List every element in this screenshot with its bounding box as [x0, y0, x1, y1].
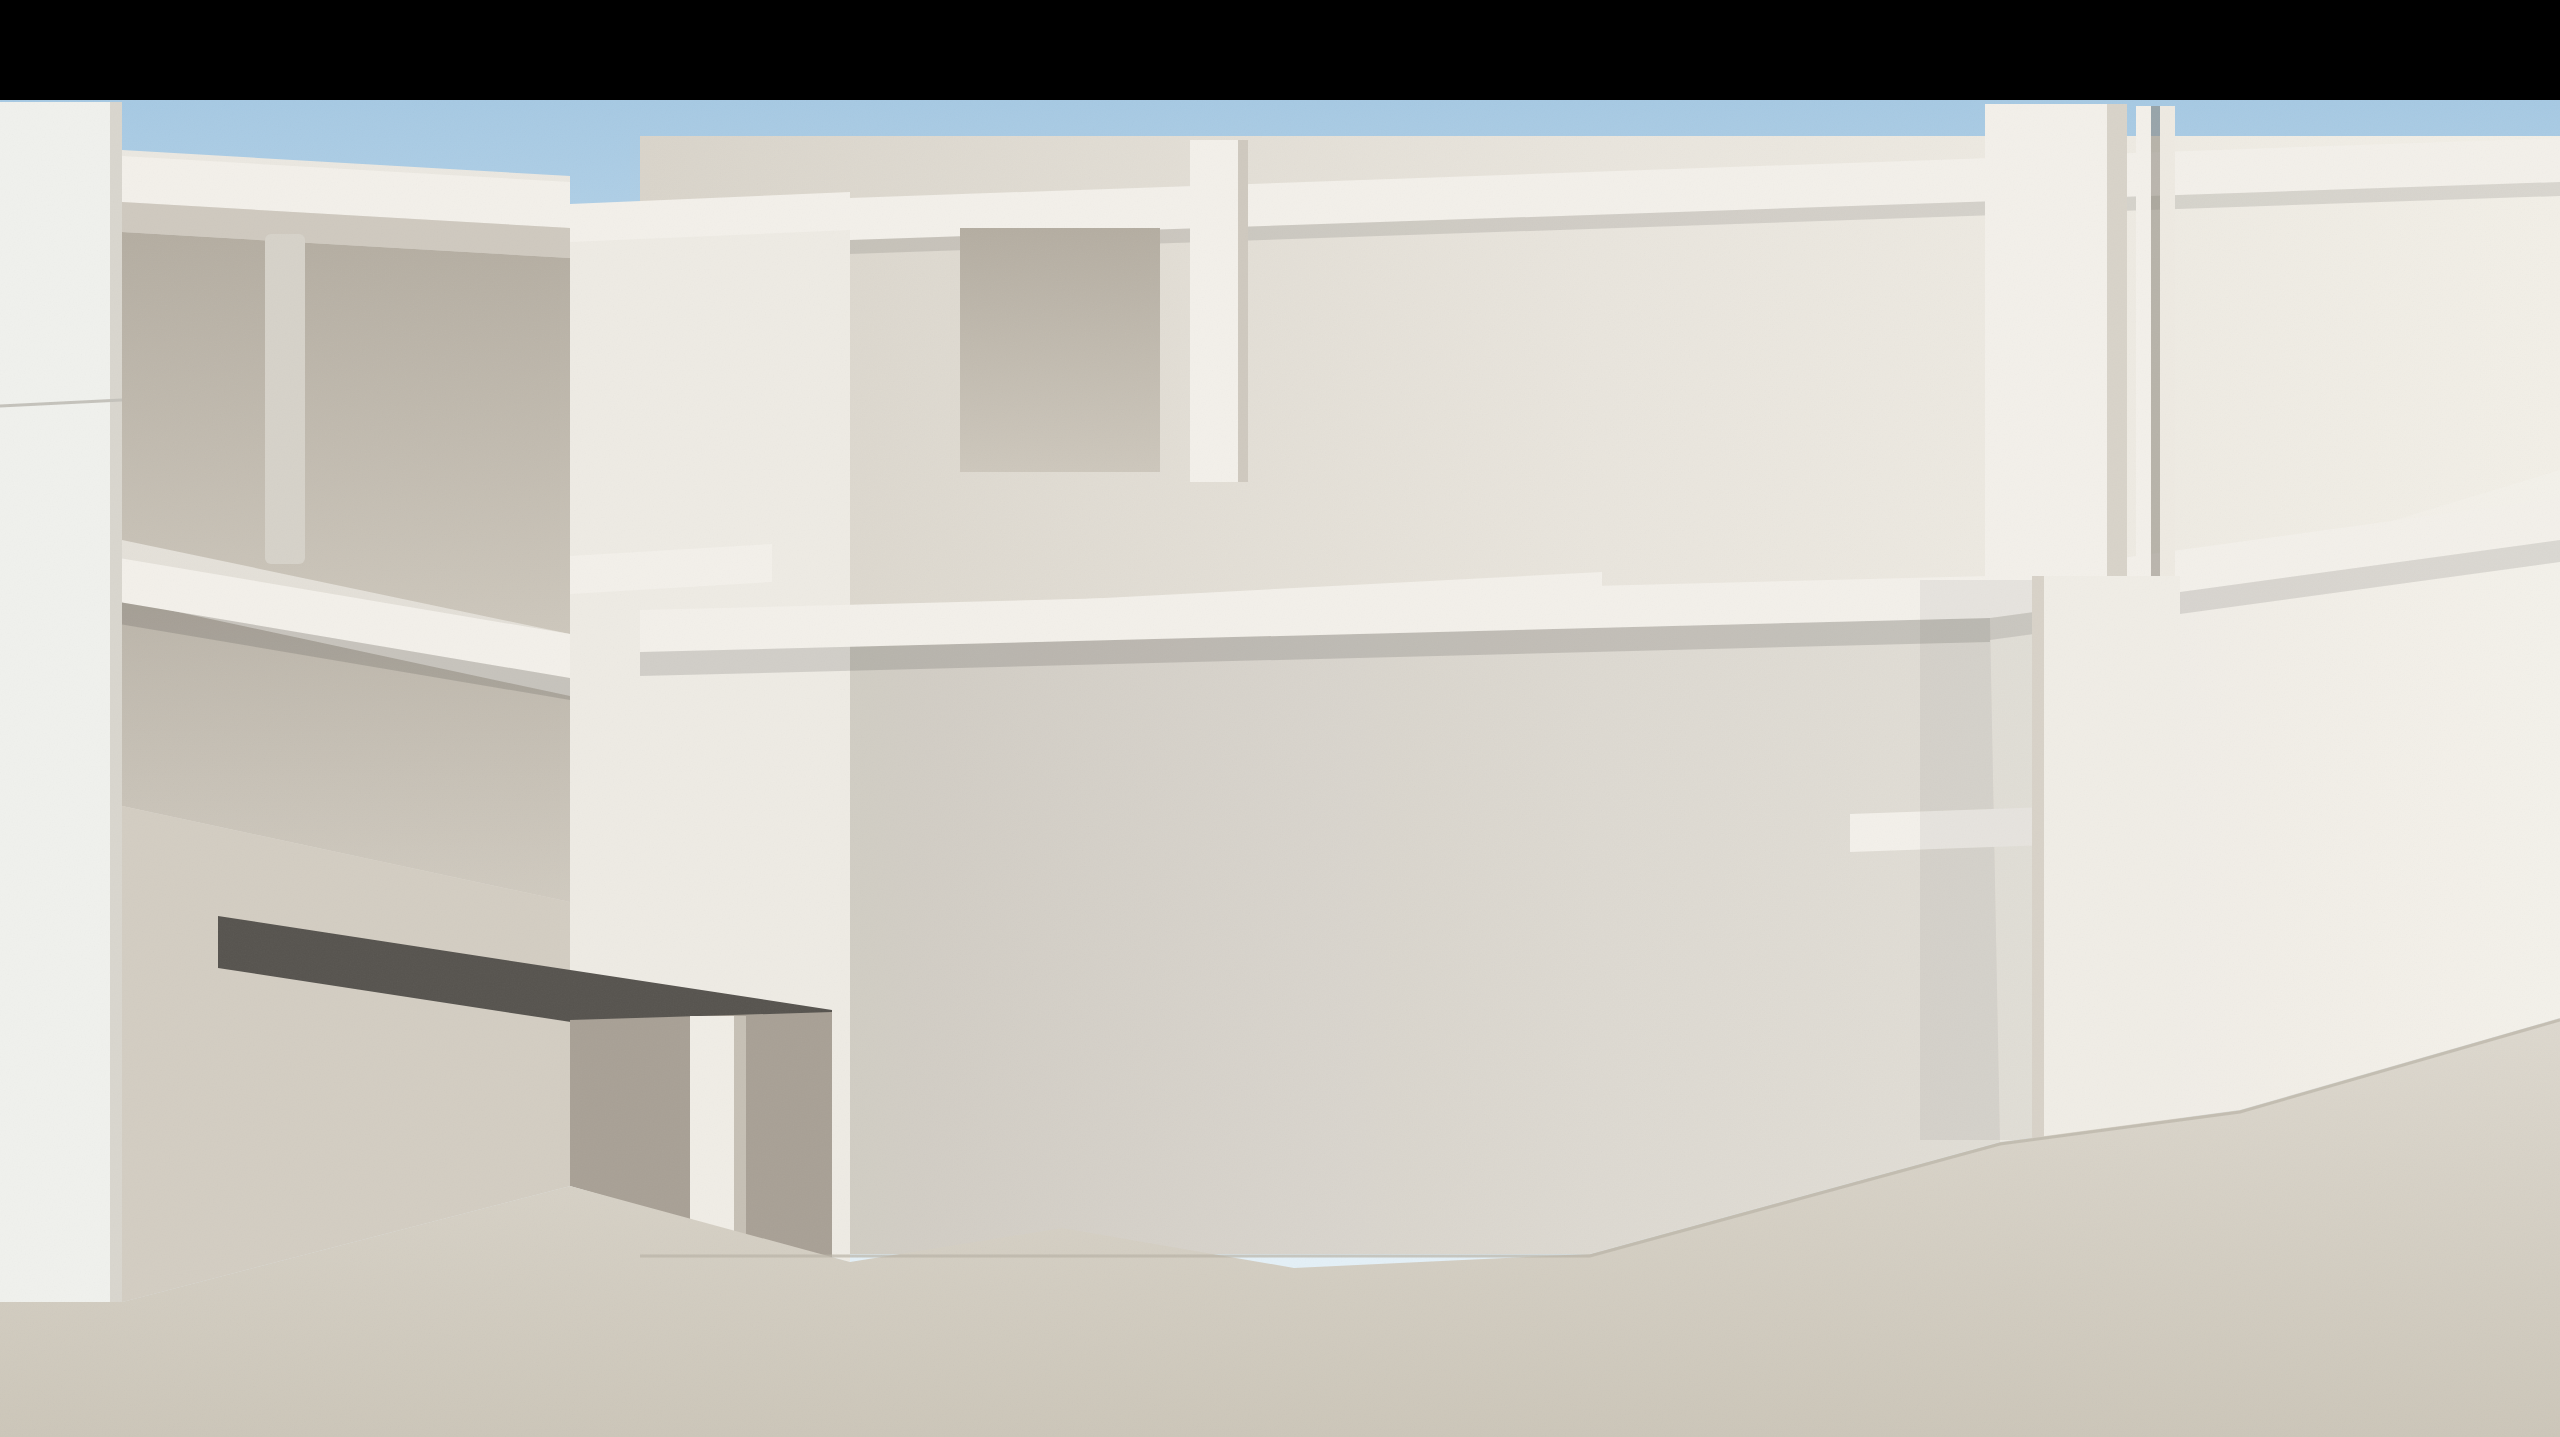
film-grain	[0, 0, 2560, 1437]
letterbox-top-bar	[0, 0, 2560, 100]
courtyard-render-image	[0, 0, 2560, 1437]
